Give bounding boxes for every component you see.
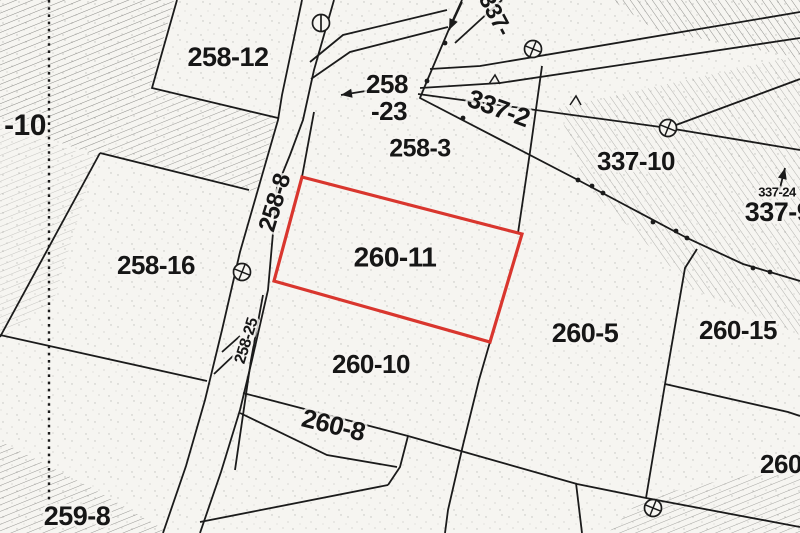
- label-260-10: 260-10: [332, 349, 410, 379]
- label-258-23a: 258: [366, 69, 408, 99]
- cadastral-map[interactable]: -10258-12258-23258-3337-337-2337-10337-2…: [0, 0, 800, 533]
- label-neg10: -10: [4, 109, 46, 142]
- boundary-point-dot: [576, 178, 581, 183]
- label-337-10: 337-10: [597, 146, 675, 176]
- survey-marker-5-lined-circle-icon: [313, 15, 330, 32]
- map-canvas: -10258-12258-23258-3337-337-2337-10337-2…: [0, 0, 800, 533]
- boundary-point-dot: [425, 79, 430, 84]
- boundary-point-dot: [768, 270, 773, 275]
- boundary-point-dot: [461, 116, 466, 121]
- label-260-5: 260-5: [552, 318, 619, 348]
- boundary-point-dot: [443, 41, 448, 46]
- label-258-3: 258-3: [389, 135, 450, 163]
- label-260-15: 260-15: [699, 315, 777, 345]
- boundary-point-dot: [685, 236, 690, 241]
- boundary-point-dot: [601, 191, 606, 196]
- label-258-12: 258-12: [187, 42, 268, 72]
- label-260-11: 260-11: [354, 241, 437, 272]
- label-259-8: 259-8: [44, 501, 111, 531]
- boundary-point-dot: [674, 229, 679, 234]
- boundary-point-dot: [751, 266, 756, 271]
- boundary-point-dot: [590, 184, 595, 189]
- label-258-16: 258-16: [117, 250, 195, 280]
- label-260-cut: 260: [760, 449, 800, 479]
- boundary-point-dot: [651, 220, 656, 225]
- label-337-9: 337-9: [745, 197, 800, 227]
- label-258-23b: -23: [371, 96, 407, 126]
